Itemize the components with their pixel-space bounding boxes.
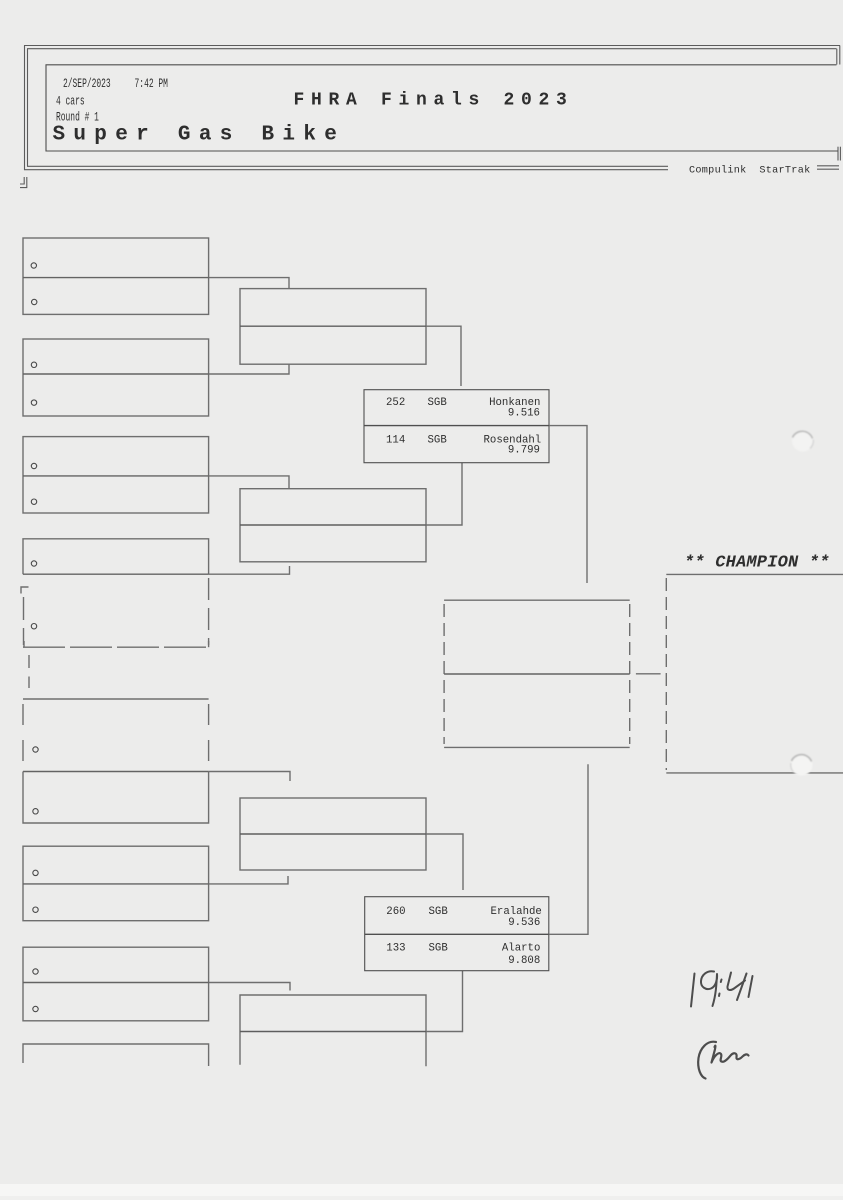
svg-text:260: 260 <box>386 906 405 918</box>
svg-text:Super Gas Bike: Super Gas Bike <box>53 124 346 147</box>
svg-text:SGB: SGB <box>429 906 449 918</box>
svg-text:2/SEP/2023 7:42 PM: 2/SEP/2023 7:42 PM <box>63 77 168 91</box>
svg-text:SGB: SGB <box>429 943 449 955</box>
svg-text:252: 252 <box>386 397 405 409</box>
svg-text:133: 133 <box>386 943 405 955</box>
svg-text:9.536: 9.536 <box>508 917 540 929</box>
svg-text:9.808: 9.808 <box>508 955 540 967</box>
svg-text:FHRA Finals 2023: FHRA Finals 2023 <box>294 91 574 111</box>
svg-text:Eralahde: Eralahde <box>491 906 542 918</box>
svg-text:** CHAMPION **: ** CHAMPION ** <box>684 554 830 573</box>
svg-text:Compulink StarTrak: Compulink StarTrak <box>689 165 810 177</box>
svg-text:Alarto: Alarto <box>502 943 540 955</box>
svg-text:4 cars: 4 cars <box>56 95 85 109</box>
svg-text:SGB: SGB <box>428 435 448 447</box>
svg-text:9.799: 9.799 <box>508 444 540 456</box>
svg-text:9.516: 9.516 <box>508 407 540 419</box>
svg-text:SGB: SGB <box>428 397 448 409</box>
svg-text:114: 114 <box>386 435 405 447</box>
